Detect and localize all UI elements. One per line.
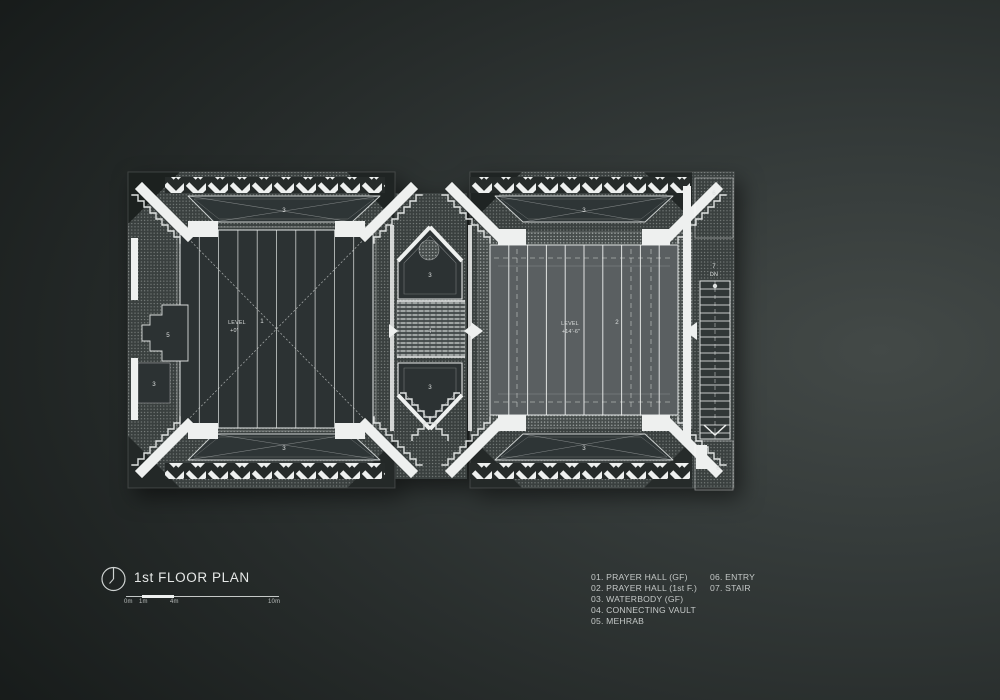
legend-item-mehrab: 05. MEHRAB <box>591 616 697 627</box>
waterbody-label: 3 <box>582 445 586 452</box>
stair-number-label: 7 <box>712 263 716 270</box>
entry-bottom-landing <box>696 445 707 469</box>
right-edge-wall <box>683 186 691 440</box>
waterbody-label: 3 <box>582 207 586 214</box>
stair-direction-label: DN <box>710 272 718 278</box>
vault-label: 4 <box>428 328 432 335</box>
waterbody-label: 3 <box>282 207 286 214</box>
waterbody-label: 3 <box>282 445 286 452</box>
connecting-vault: 4 <box>389 301 473 357</box>
waterbody-label: 3 <box>152 381 156 388</box>
prayer-hall-1stf: LEVEL +14'-6" 2 <box>471 232 697 428</box>
title-block: 1st FLOOR PLAN 0m 1m 4m 10m <box>98 563 358 613</box>
mehrab-label: 5 <box>166 332 170 339</box>
hall2-level-label: LEVEL <box>561 321 579 327</box>
hall1-level-label: LEVEL <box>228 320 246 326</box>
waterbody-label: 3 <box>428 272 432 279</box>
scale-bar: 0m 1m 4m 10m <box>126 596 279 608</box>
stair-start-dot <box>713 284 717 288</box>
left-wall-lower <box>131 358 138 420</box>
hall2-number: 2 <box>615 319 619 326</box>
scale-tick-1m: 1m <box>139 599 148 605</box>
legend-item-prayer-hall-1stf: 02. PRAYER HALL (1st F.) <box>591 583 697 594</box>
scale-tick-4m: 4m <box>170 599 179 605</box>
prayer-hall-gf: LEVEL +0' 1 <box>177 227 376 431</box>
scale-tick-0m: 0m <box>124 599 133 605</box>
legend-item-prayer-hall-gf: 01. PRAYER HALL (GF) <box>591 572 697 583</box>
waterbody-label: 3 <box>428 384 432 391</box>
zigzag-band-right-top <box>470 177 690 193</box>
north-arrow-icon <box>100 565 127 592</box>
floor-plan-drawing: 3 3 3 3 <box>118 165 738 495</box>
hall1-number: 1 <box>260 318 264 325</box>
waterbody-left-top: 3 <box>188 196 380 222</box>
legend-item-waterbody: 03. WATERBODY (GF) <box>591 594 697 605</box>
fountain-circle <box>419 240 439 260</box>
legend-item-connecting-vault: 04. CONNECTING VAULT <box>591 605 697 616</box>
entry-label-top: 6 <box>712 190 716 197</box>
waterbody-right-bottom: 3 <box>495 434 673 460</box>
zigzag-band-right-bottom <box>470 463 690 479</box>
long-stair <box>700 281 730 439</box>
hall1-level-value: +0' <box>230 328 238 334</box>
hall2-level-value: +14'-6" <box>562 329 580 335</box>
legend-column-1: 01. PRAYER HALL (GF) 02. PRAYER HALL (1s… <box>591 572 697 627</box>
zigzag-band-left-top <box>165 177 385 193</box>
page-title: 1st FLOOR PLAN <box>134 570 250 585</box>
scale-thick-segment <box>142 595 174 598</box>
left-wall-upper <box>131 238 138 300</box>
zigzag-band-left-bottom <box>165 463 385 479</box>
legend-item-entry: 06. ENTRY <box>710 572 755 583</box>
entry-label-bottom: 6 <box>716 465 720 472</box>
waterbody-right-top: 3 <box>495 196 673 222</box>
legend-item-stair: 07. STAIR <box>710 583 755 594</box>
scale-tick-10m: 10m <box>268 599 280 605</box>
legend-column-2: 06. ENTRY 07. STAIR <box>710 572 755 594</box>
